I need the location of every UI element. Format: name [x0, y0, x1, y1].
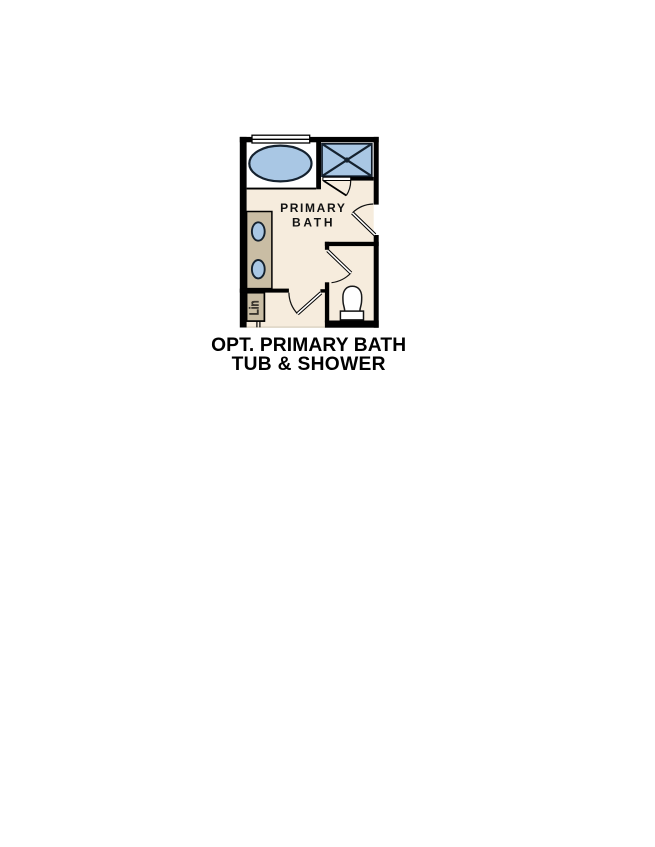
svg-text:BATH: BATH: [292, 216, 335, 230]
svg-text:PRIMARY: PRIMARY: [280, 201, 346, 215]
svg-text:Lin: Lin: [246, 300, 261, 315]
svg-text:TUB & SHOWER: TUB & SHOWER: [232, 354, 386, 375]
